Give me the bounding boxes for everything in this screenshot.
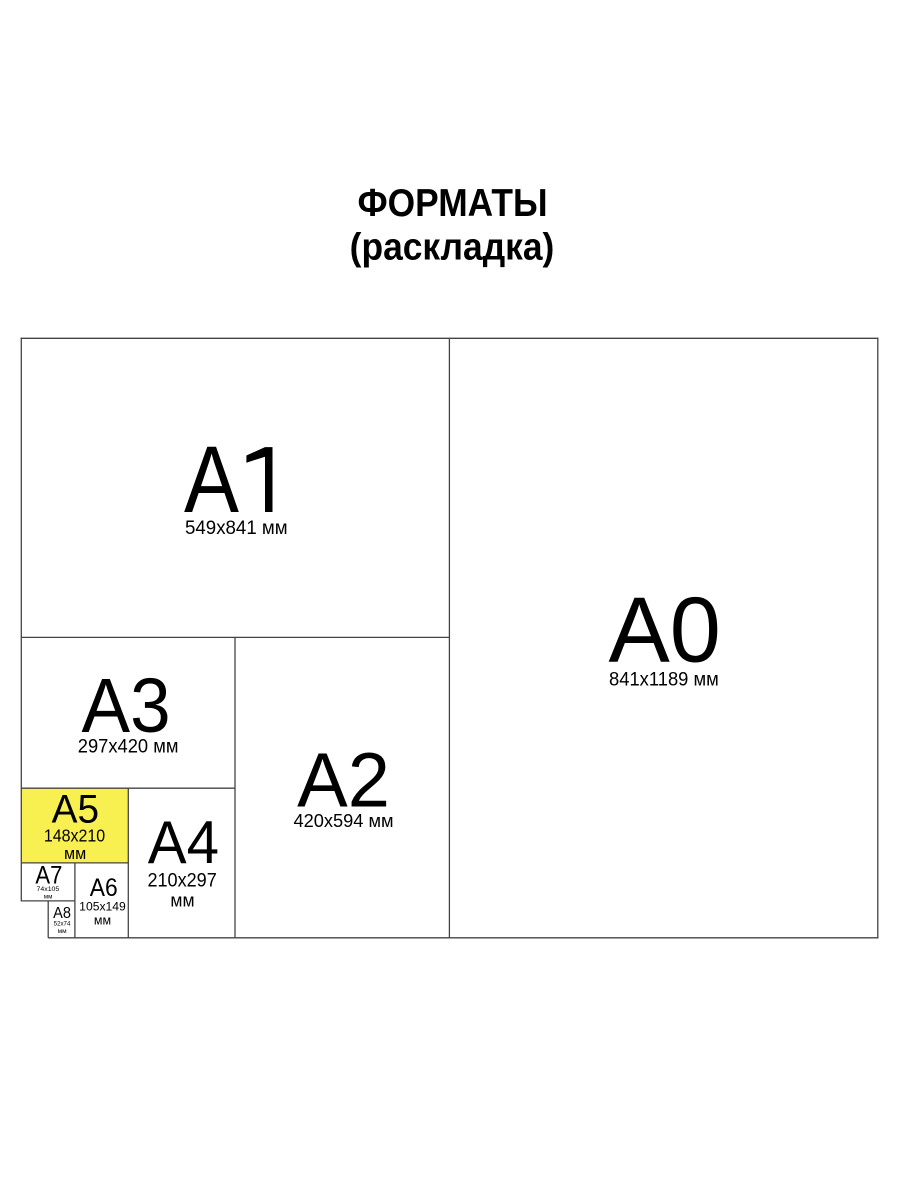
svg-text:ФОРМАТЫ: ФОРМАТЫ (357, 181, 547, 225)
svg-text:148х210: 148х210 (44, 826, 105, 846)
svg-text:А4: А4 (148, 808, 219, 876)
svg-text:А0: А0 (609, 577, 721, 682)
svg-text:420х594 мм: 420х594 мм (293, 810, 393, 831)
svg-text:А6: А6 (90, 875, 118, 902)
svg-text:297х420 мм: 297х420 мм (78, 735, 179, 756)
svg-text:210х297: 210х297 (147, 869, 216, 891)
svg-text:52х74: 52х74 (54, 920, 71, 927)
svg-text:А7: А7 (35, 862, 62, 889)
svg-text:мм: мм (94, 914, 111, 928)
svg-text:мм: мм (58, 928, 67, 935)
svg-text:мм: мм (64, 844, 86, 863)
svg-text:мм: мм (170, 890, 194, 911)
svg-text:А: А (184, 427, 239, 532)
svg-text:мм: мм (44, 894, 53, 901)
svg-text:(раскладка): (раскладка) (350, 225, 555, 268)
svg-text:549х841 мм: 549х841 мм (185, 518, 288, 539)
svg-text:841х1189 мм: 841х1189 мм (609, 669, 719, 691)
svg-text:74х105: 74х105 (37, 886, 60, 893)
svg-text:105х149: 105х149 (79, 899, 126, 913)
